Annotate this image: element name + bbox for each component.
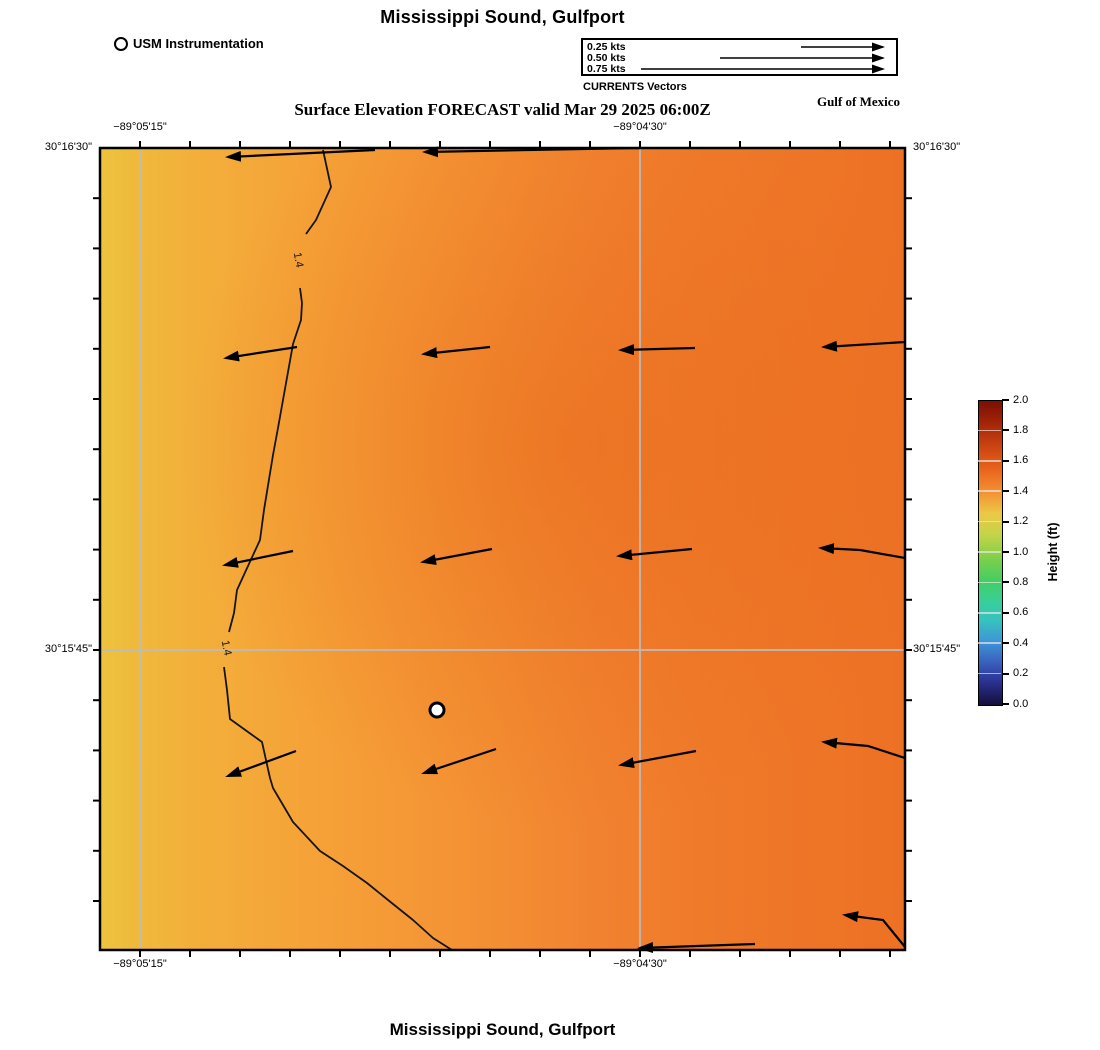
- colorbar-gridline: [978, 430, 1001, 432]
- colorbar-gridline: [978, 612, 1001, 614]
- forecast-subtitle: Surface Elevation FORECAST valid Mar 29 …: [100, 100, 905, 120]
- axis-tick-label: 30°15'45": [18, 643, 92, 655]
- colorbar-tick-label: 1.0: [1013, 546, 1028, 558]
- colorbar-tick-label: 2.0: [1013, 394, 1028, 406]
- page-title: Mississippi Sound, Gulfport: [100, 7, 905, 28]
- colorbar-tick-label: 0.4: [1013, 637, 1028, 649]
- colorbar-gridline: [978, 582, 1001, 584]
- colorbar-gridline: [978, 490, 1001, 492]
- vector-legend-box: 0.25 kts 0.50 kts 0.75 kts: [581, 38, 898, 76]
- colorbar-gridline: [978, 673, 1001, 675]
- axis-tick-label: 30°16'30": [913, 141, 960, 153]
- axis-tick-label: −89°04'30": [613, 121, 667, 133]
- colorbar-tick: [1002, 581, 1009, 583]
- colorbar-tick-label: 1.6: [1013, 454, 1028, 466]
- colorbar-tick-label: 0.6: [1013, 606, 1028, 618]
- colorbar-tick: [1002, 399, 1009, 401]
- colorbar-tick-label: 0.8: [1013, 576, 1028, 588]
- vector-legend-arrows: [583, 40, 896, 74]
- colorbar-gridline: [978, 521, 1001, 523]
- axis-tick-label: −89°04'30": [613, 958, 667, 970]
- elevation-map: 1.41.4: [90, 138, 915, 960]
- colorbar-tick-label: 0.0: [1013, 698, 1028, 710]
- colorbar-tick: [1002, 460, 1009, 462]
- instrument-legend-label: USM Instrumentation: [133, 36, 264, 51]
- vector-legend-title: CURRENTS Vectors: [583, 81, 687, 93]
- colorbar-tick: [1002, 551, 1009, 553]
- colorbar-gridline: [978, 460, 1001, 462]
- colorbar-tick: [1002, 521, 1009, 523]
- colorbar-tick: [1002, 612, 1009, 614]
- colorbar: [978, 400, 1003, 706]
- colorbar-tick: [1002, 490, 1009, 492]
- bottom-caption: Mississippi Sound, Gulfport: [100, 1020, 905, 1040]
- colorbar-tick: [1002, 703, 1009, 705]
- axis-tick-label: −89°05'15": [113, 958, 167, 970]
- colorbar-tick-label: 1.8: [1013, 424, 1028, 436]
- colorbar-tick: [1002, 642, 1009, 644]
- colorbar-tick-label: 1.2: [1013, 515, 1028, 527]
- colorbar-tick: [1002, 429, 1009, 431]
- axis-tick-label: 30°15'45": [913, 643, 960, 655]
- axis-tick-label: −89°05'15": [113, 121, 167, 133]
- colorbar-tick-label: 1.4: [1013, 485, 1028, 497]
- colorbar-tick-label: 0.2: [1013, 667, 1028, 679]
- colorbar-gridline: [978, 551, 1001, 553]
- colorbar-axis-label: Height (ft): [1046, 510, 1060, 594]
- map-area: 1.41.4: [90, 138, 915, 960]
- axis-tick-label: 30°16'30": [18, 141, 92, 153]
- station-circle-icon: [114, 37, 128, 51]
- colorbar-gridline: [978, 642, 1001, 644]
- colorbar-tick: [1002, 673, 1009, 675]
